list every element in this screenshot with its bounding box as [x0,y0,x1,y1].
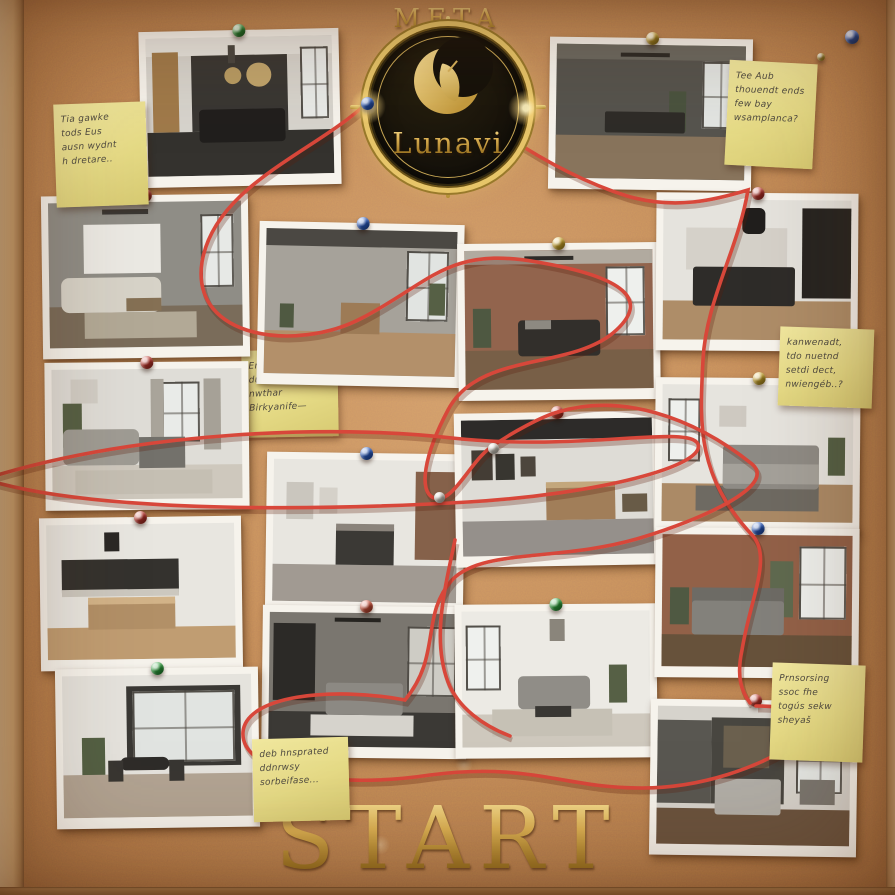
scene-shape [723,726,770,768]
scene-shape [280,304,294,327]
corner-yellow-pin[interactable] [817,53,825,61]
scene-shape [264,329,456,376]
scene-shape [799,779,834,804]
photo-kitchen-gallery[interactable] [454,410,662,568]
photo-loft-dark-living[interactable] [261,605,468,759]
scene-shape [802,209,851,299]
scene-shape [686,228,788,271]
scene-shape [524,255,573,260]
photo-office-moody[interactable] [548,37,753,192]
window-shape [201,214,235,287]
photo-scene [268,612,461,748]
photo-scene [464,249,653,390]
scene-shape [714,778,780,815]
photo-bedroom-brick-fan[interactable] [457,242,661,401]
green-pushpin[interactable] [549,598,562,611]
photo-living-grey-cube[interactable] [44,361,249,511]
scene-shape [102,209,148,214]
scene-shape [326,682,403,715]
scene-shape [496,454,516,480]
photo-scene [272,459,458,604]
window-shape [465,625,501,691]
red-pushpin[interactable] [748,694,761,707]
scene-shape [720,405,747,427]
handwritten-line: kanwenadt, [787,337,867,352]
scene-shape [550,619,565,641]
handwritten-line: setdi dect, [786,365,866,380]
note-top-right[interactable]: Tee Aubthouendt endsfew baywsamplanca? [724,60,817,169]
note-bottom-center[interactable]: deb hnspratedddnrwsysorbeifase... [252,737,350,822]
scene-shape [62,588,179,596]
scene-shape [71,380,98,404]
handwritten-line: togús sekw [778,701,857,716]
photo-scene [661,534,852,668]
scene-shape [657,719,712,803]
scene-shape [204,379,222,449]
red-pushpin[interactable] [752,187,765,200]
photo-scene [555,44,746,181]
corner-blue-pin[interactable] [845,30,859,44]
photo-living-white-art[interactable] [41,194,250,360]
scene-shape [471,450,493,480]
scene-shape [521,456,537,477]
scene-shape [621,53,670,58]
scene-shape [472,309,491,348]
scene-shape [341,302,380,335]
photo-bedroom-dark-mirrors[interactable] [138,28,341,188]
scene-shape [272,564,456,603]
photo-bedroom-brick-headboard[interactable] [654,527,859,679]
photo-scene [48,201,243,349]
scene-shape [319,488,338,514]
scene-shape [518,676,590,709]
scene-shape [286,482,314,519]
scene-shape [335,528,394,566]
window-shape [300,46,329,118]
scene-shape [246,63,271,87]
handwritten-line: sorbeifase... [260,773,343,791]
scene-shape [109,761,124,783]
photo-scene [462,610,651,747]
scene-shape [224,67,241,84]
scene-shape [546,483,615,520]
lunavi-logo[interactable]: Lunavi [369,28,527,186]
photo-scene [461,417,654,556]
photo-kitchen-charcoal[interactable] [39,516,243,672]
scene-shape [228,45,236,63]
window-shape [605,266,645,336]
scene-shape [546,481,615,489]
red-pushpin[interactable] [134,511,147,524]
scene-shape [273,623,316,701]
scene-shape [126,297,161,311]
photo-scene [46,523,236,661]
scene-shape [83,224,161,274]
scene-shape [139,436,185,468]
photo-scene [146,35,335,177]
window-shape [668,398,701,461]
scene-shape [555,135,745,181]
scene-shape [461,417,652,441]
photo-scene [62,674,253,819]
yellow-pushpin[interactable] [552,237,565,250]
blue-pushpin[interactable] [356,217,369,230]
scene-shape [151,52,179,133]
scene-shape [693,267,795,307]
scene-shape [742,208,765,233]
handwritten-line: tdo nuetnd [786,351,866,366]
window-shape [132,690,235,762]
scene-shape [414,472,458,561]
yellow-pushpin[interactable] [752,372,765,385]
scene-shape [335,618,381,623]
scene-shape [623,494,648,512]
handwritten-line: Birkyanife— [249,399,332,417]
scene-shape [310,714,413,737]
window-shape [162,382,201,442]
orange-pushpin[interactable] [359,600,372,613]
scene-shape [605,111,685,134]
scene-shape [88,596,175,604]
scene-shape [199,108,285,143]
scene-shape [120,757,169,770]
handwritten-line: sheyaš [778,714,857,729]
scene-shape [525,320,551,330]
scene-shape [723,464,819,484]
scene-shape [463,518,655,557]
note-mid-right[interactable]: kanwenadt,tdo nuetndsetdi dect,nwiengéb.… [778,326,875,408]
handwritten-line: wsamplanca? [734,112,808,128]
board-frame-right [886,0,895,895]
photo-dining-loft[interactable] [55,667,260,830]
green-pushpin[interactable] [150,662,163,675]
handwritten-line: ssoc fhe [779,687,858,702]
scene-shape [169,760,184,782]
scene-shape [669,587,688,624]
scene-shape [82,738,105,778]
scene-shape [336,523,395,531]
board-frame-left [0,0,24,895]
scene-shape [266,228,457,249]
window-shape [406,627,457,697]
photo-scene [51,368,242,500]
window-shape [799,546,847,620]
handwritten-line: nwiengéb..? [785,378,865,393]
cork-vision-board: META START Lunavi Tia gawketods Eusausn … [0,0,895,895]
scene-shape [696,486,818,512]
scene-shape [47,625,235,660]
red-pushpin[interactable] [550,406,563,419]
scene-shape [63,429,139,466]
red-pushpin[interactable] [140,356,153,369]
scene-shape [661,634,851,667]
scene-shape [104,532,119,551]
photo-living-bright-sofa[interactable] [454,603,657,758]
scene-shape [535,706,571,717]
photo-loft-empty-cube[interactable] [256,221,464,388]
handwritten-line: Prnsorsing [779,673,858,688]
string-anchor-pin-2[interactable] [488,443,499,454]
scene-shape [828,438,846,477]
scene-shape [429,284,445,316]
photo-scene [663,199,852,340]
scene-shape [692,600,783,635]
note-bottom-right[interactable]: Prnsorsingssoc fhetogús sekwsheyaš [769,662,865,762]
scene-shape [75,470,212,495]
photo-living-island-brick[interactable] [265,452,465,615]
brand-name: Lunavi [369,126,527,160]
note-top-left[interactable]: Tia gawketods Eusausn wydnth dretare.. [53,101,149,207]
scene-shape [84,311,196,339]
blue-pushpin[interactable] [360,447,373,460]
scene-shape [609,665,628,703]
logo-blue-pin[interactable] [361,97,374,110]
photo-scene [264,228,458,377]
blue-pushpin[interactable] [752,522,765,535]
scene-shape [63,773,253,818]
string-anchor-pin-1[interactable] [434,492,445,503]
